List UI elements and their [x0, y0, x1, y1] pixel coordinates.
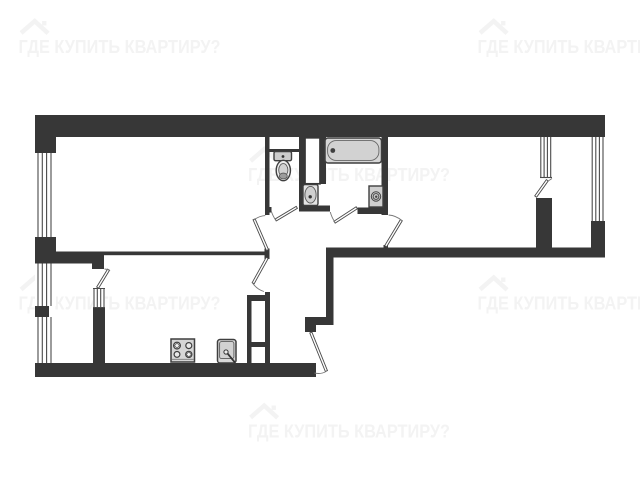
svg-text:ГДЕ КУПИТЬ КВАРТИРУ?: ГДЕ КУПИТЬ КВАРТИРУ?	[19, 36, 221, 57]
svg-text:ГДЕ КУПИТЬ КВАРТИРУ?: ГДЕ КУПИТЬ КВАРТИРУ?	[248, 421, 450, 442]
svg-text:ГДЕ КУПИТЬ КВАРТИРУ?: ГДЕ КУПИТЬ КВАРТИРУ?	[478, 293, 640, 314]
svg-text:ГДЕ КУПИТЬ КВАРТИРУ?: ГДЕ КУПИТЬ КВАРТИРУ?	[478, 36, 640, 57]
